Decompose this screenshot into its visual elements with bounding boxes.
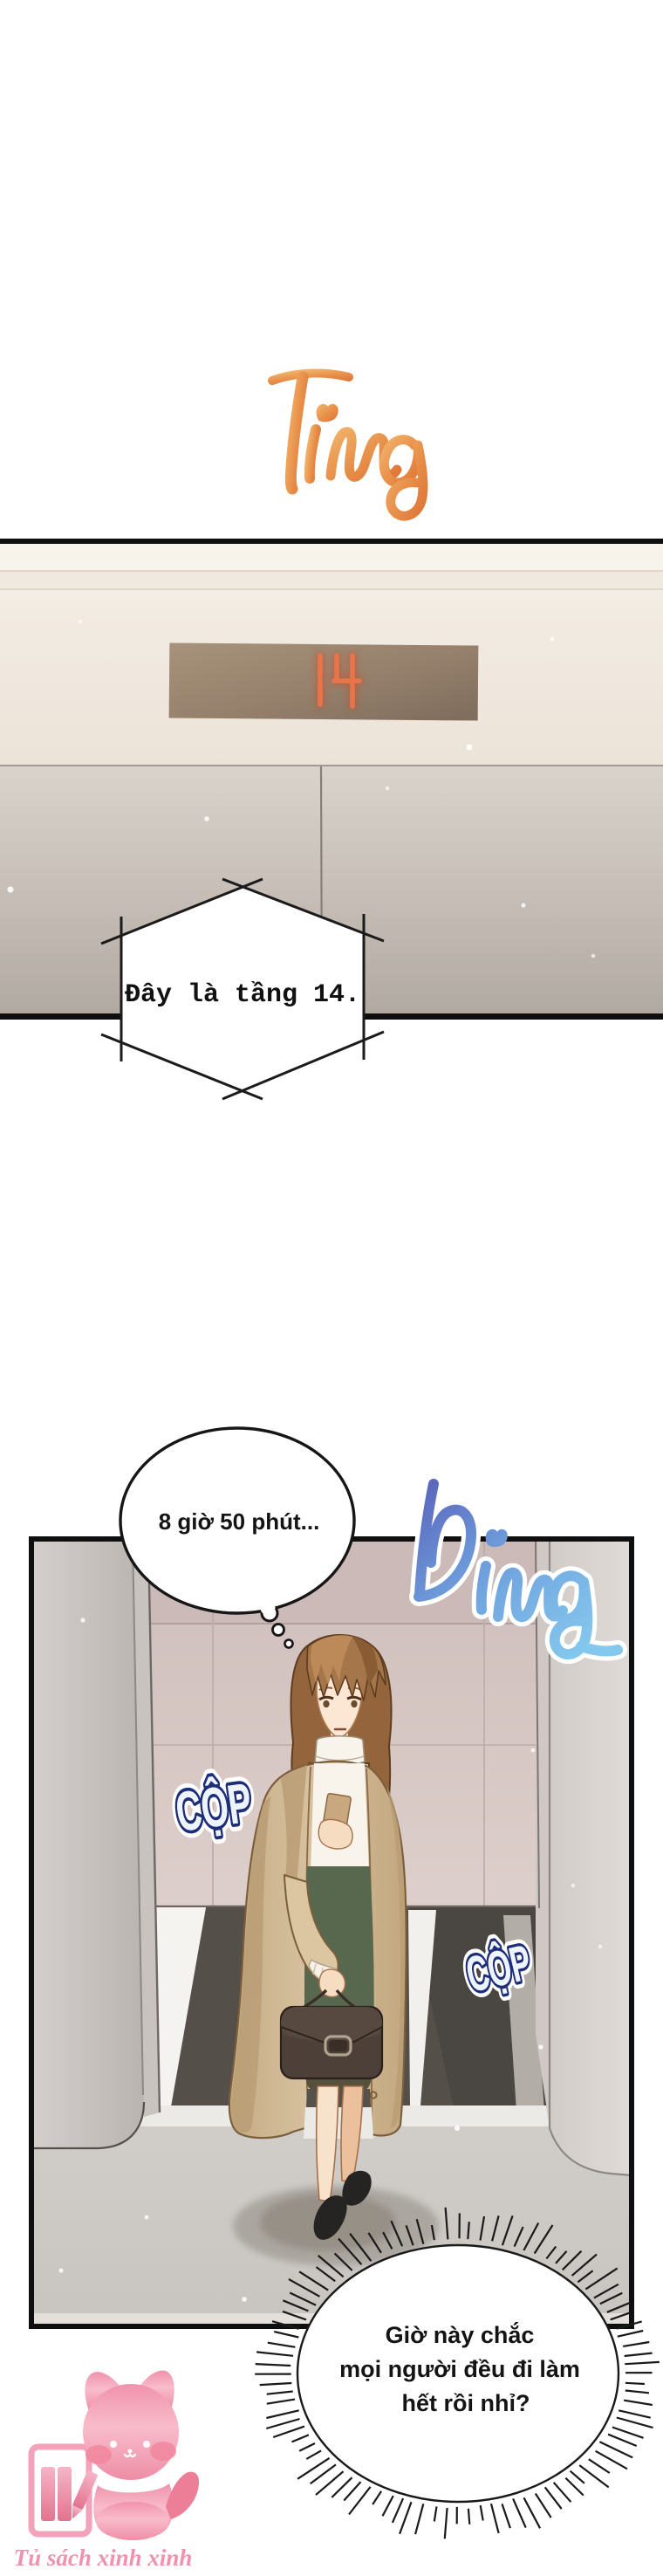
svg-text:hết rồi nhỉ?: hết rồi nhỉ? <box>402 2390 530 2416</box>
svg-text:8 giờ 50 phút...: 8 giờ 50 phút... <box>159 1508 320 1535</box>
svg-text:mọi người đều đi làm: mọi người đều đi làm <box>339 2356 580 2382</box>
svg-text:Giờ này chắc: Giờ này chắc <box>386 2321 535 2348</box>
svg-text:CỘP: CỘP <box>172 1770 256 1844</box>
svg-text:Đây là tầng 14.: Đây là tầng 14. <box>125 980 360 1010</box>
svg-text:Tủ sách xinh xinh: Tủ sách xinh xinh <box>14 2545 193 2571</box>
